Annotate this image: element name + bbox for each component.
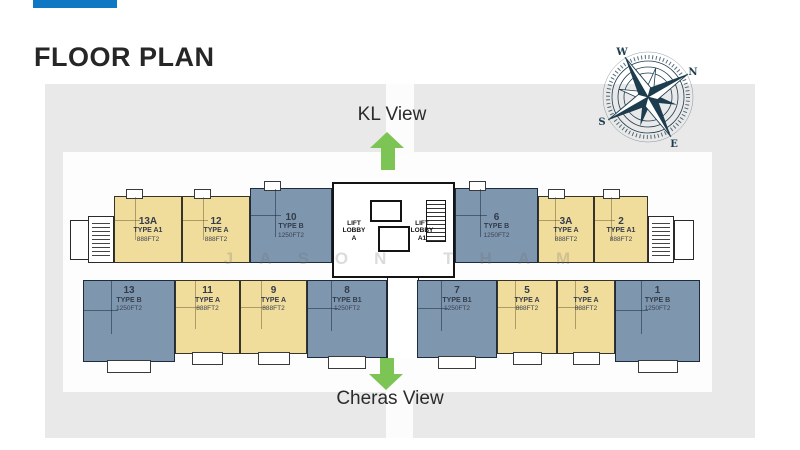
unit-5: 5 TYPE A 888FT2: [497, 280, 557, 354]
unit-13A: 13A TYPE A1 888FT2: [114, 196, 182, 263]
central-corridor-passage: [387, 266, 419, 358]
unit-number: 6: [456, 212, 537, 224]
unit-area: 888FT2: [539, 236, 593, 243]
unit-number: 2: [595, 216, 647, 228]
unit-3: 3 TYPE A 888FT2: [557, 280, 615, 354]
stair-steps: [92, 223, 110, 256]
lift-lobby-a-label: LIFT LOBBY A: [338, 220, 370, 242]
unit-type: TYPE A: [183, 227, 249, 235]
stairwell-right: [648, 216, 674, 263]
unit-number: 10: [251, 212, 331, 224]
unit-type: TYPE B1: [418, 297, 496, 305]
arrow-up-head: [370, 132, 404, 148]
cheras-view-label: Cheras View: [310, 388, 470, 410]
unit-number: 1: [616, 285, 699, 297]
unit-type: TYPE B: [251, 223, 331, 231]
unit-area: 888FT2: [115, 236, 181, 243]
compass-south-label: S: [598, 117, 605, 128]
unit-area: 888FT2: [558, 305, 614, 312]
unit-10: 10 TYPE B 1250FT2: [250, 188, 332, 263]
unit-2: 2 TYPE A1 888FT2: [594, 196, 648, 263]
service-room-right: [674, 220, 694, 260]
unit-type: TYPE A: [241, 297, 306, 305]
compass-east-label: E: [670, 139, 678, 150]
unit-area: 888FT2: [498, 305, 556, 312]
unit-type: TYPE A: [498, 297, 556, 305]
unit-8: 8 TYPE B1 1250FT2: [307, 280, 387, 358]
unit-area: 888FT2: [241, 305, 306, 312]
unit-type: TYPE A: [539, 227, 593, 235]
unit-number: 11: [176, 285, 239, 297]
unit-type: TYPE A: [176, 297, 239, 305]
unit-type: TYPE B: [84, 297, 174, 305]
unit-type: TYPE B1: [308, 297, 386, 305]
stairwell-left: [88, 216, 114, 263]
unit-number: 13A: [115, 216, 181, 228]
unit-area: 1250FT2: [616, 305, 699, 312]
unit-type: TYPE A1: [595, 227, 647, 235]
unit-6: 6 TYPE B 1250FT2: [455, 188, 538, 263]
unit-9: 9 TYPE A 888FT2: [240, 280, 307, 354]
unit-12: 12 TYPE A 888FT2: [182, 196, 250, 263]
unit-area: 888FT2: [176, 305, 239, 312]
unit-area: 1250FT2: [308, 305, 386, 312]
unit-area: 1250FT2: [418, 305, 496, 312]
unit-number: 13: [84, 285, 174, 297]
compass-rose-icon: W N S E: [590, 39, 706, 155]
unit-number: 3: [558, 285, 614, 297]
unit-type: TYPE A1: [115, 227, 181, 235]
unit-13: 13 TYPE B 1250FT2: [83, 280, 175, 362]
unit-number: 12: [183, 216, 249, 228]
compass-north-label: N: [688, 67, 697, 78]
unit-type: TYPE A: [558, 297, 614, 305]
kl-view-label: KL View: [312, 104, 472, 126]
unit-area: 1250FT2: [84, 305, 174, 312]
stair-steps: [652, 223, 670, 256]
unit-11: 11 TYPE A 888FT2: [175, 280, 240, 354]
service-room-left: [70, 220, 90, 260]
unit-number: 5: [498, 285, 556, 297]
unit-number: 9: [241, 285, 306, 297]
unit-area: 1250FT2: [251, 232, 331, 239]
unit-1: 1 TYPE B 1250FT2: [615, 280, 700, 362]
lift-core: LIFT LOBBY A LIFT LOBBY A1: [332, 182, 455, 278]
lift-shaft: [370, 200, 402, 222]
lift-lobby-a1-label: LIFT LOBBY A1: [404, 220, 440, 242]
unit-type: TYPE B: [456, 223, 537, 231]
unit-3A: 3A TYPE A 888FT2: [538, 196, 594, 263]
accent-bar: [33, 0, 117, 8]
unit-area: 1250FT2: [456, 232, 537, 239]
page-title: FLOOR PLAN: [34, 42, 215, 73]
unit-7: 7 TYPE B1 1250FT2: [417, 280, 497, 358]
unit-area: 888FT2: [183, 236, 249, 243]
unit-number: 3A: [539, 216, 593, 228]
arrow-up-shaft: [381, 148, 395, 170]
unit-type: TYPE B: [616, 297, 699, 305]
unit-number: 7: [418, 285, 496, 297]
compass-west-label: W: [615, 47, 628, 58]
kl-view-arrow-icon: [370, 132, 406, 170]
unit-number: 8: [308, 285, 386, 297]
unit-area: 888FT2: [595, 236, 647, 243]
